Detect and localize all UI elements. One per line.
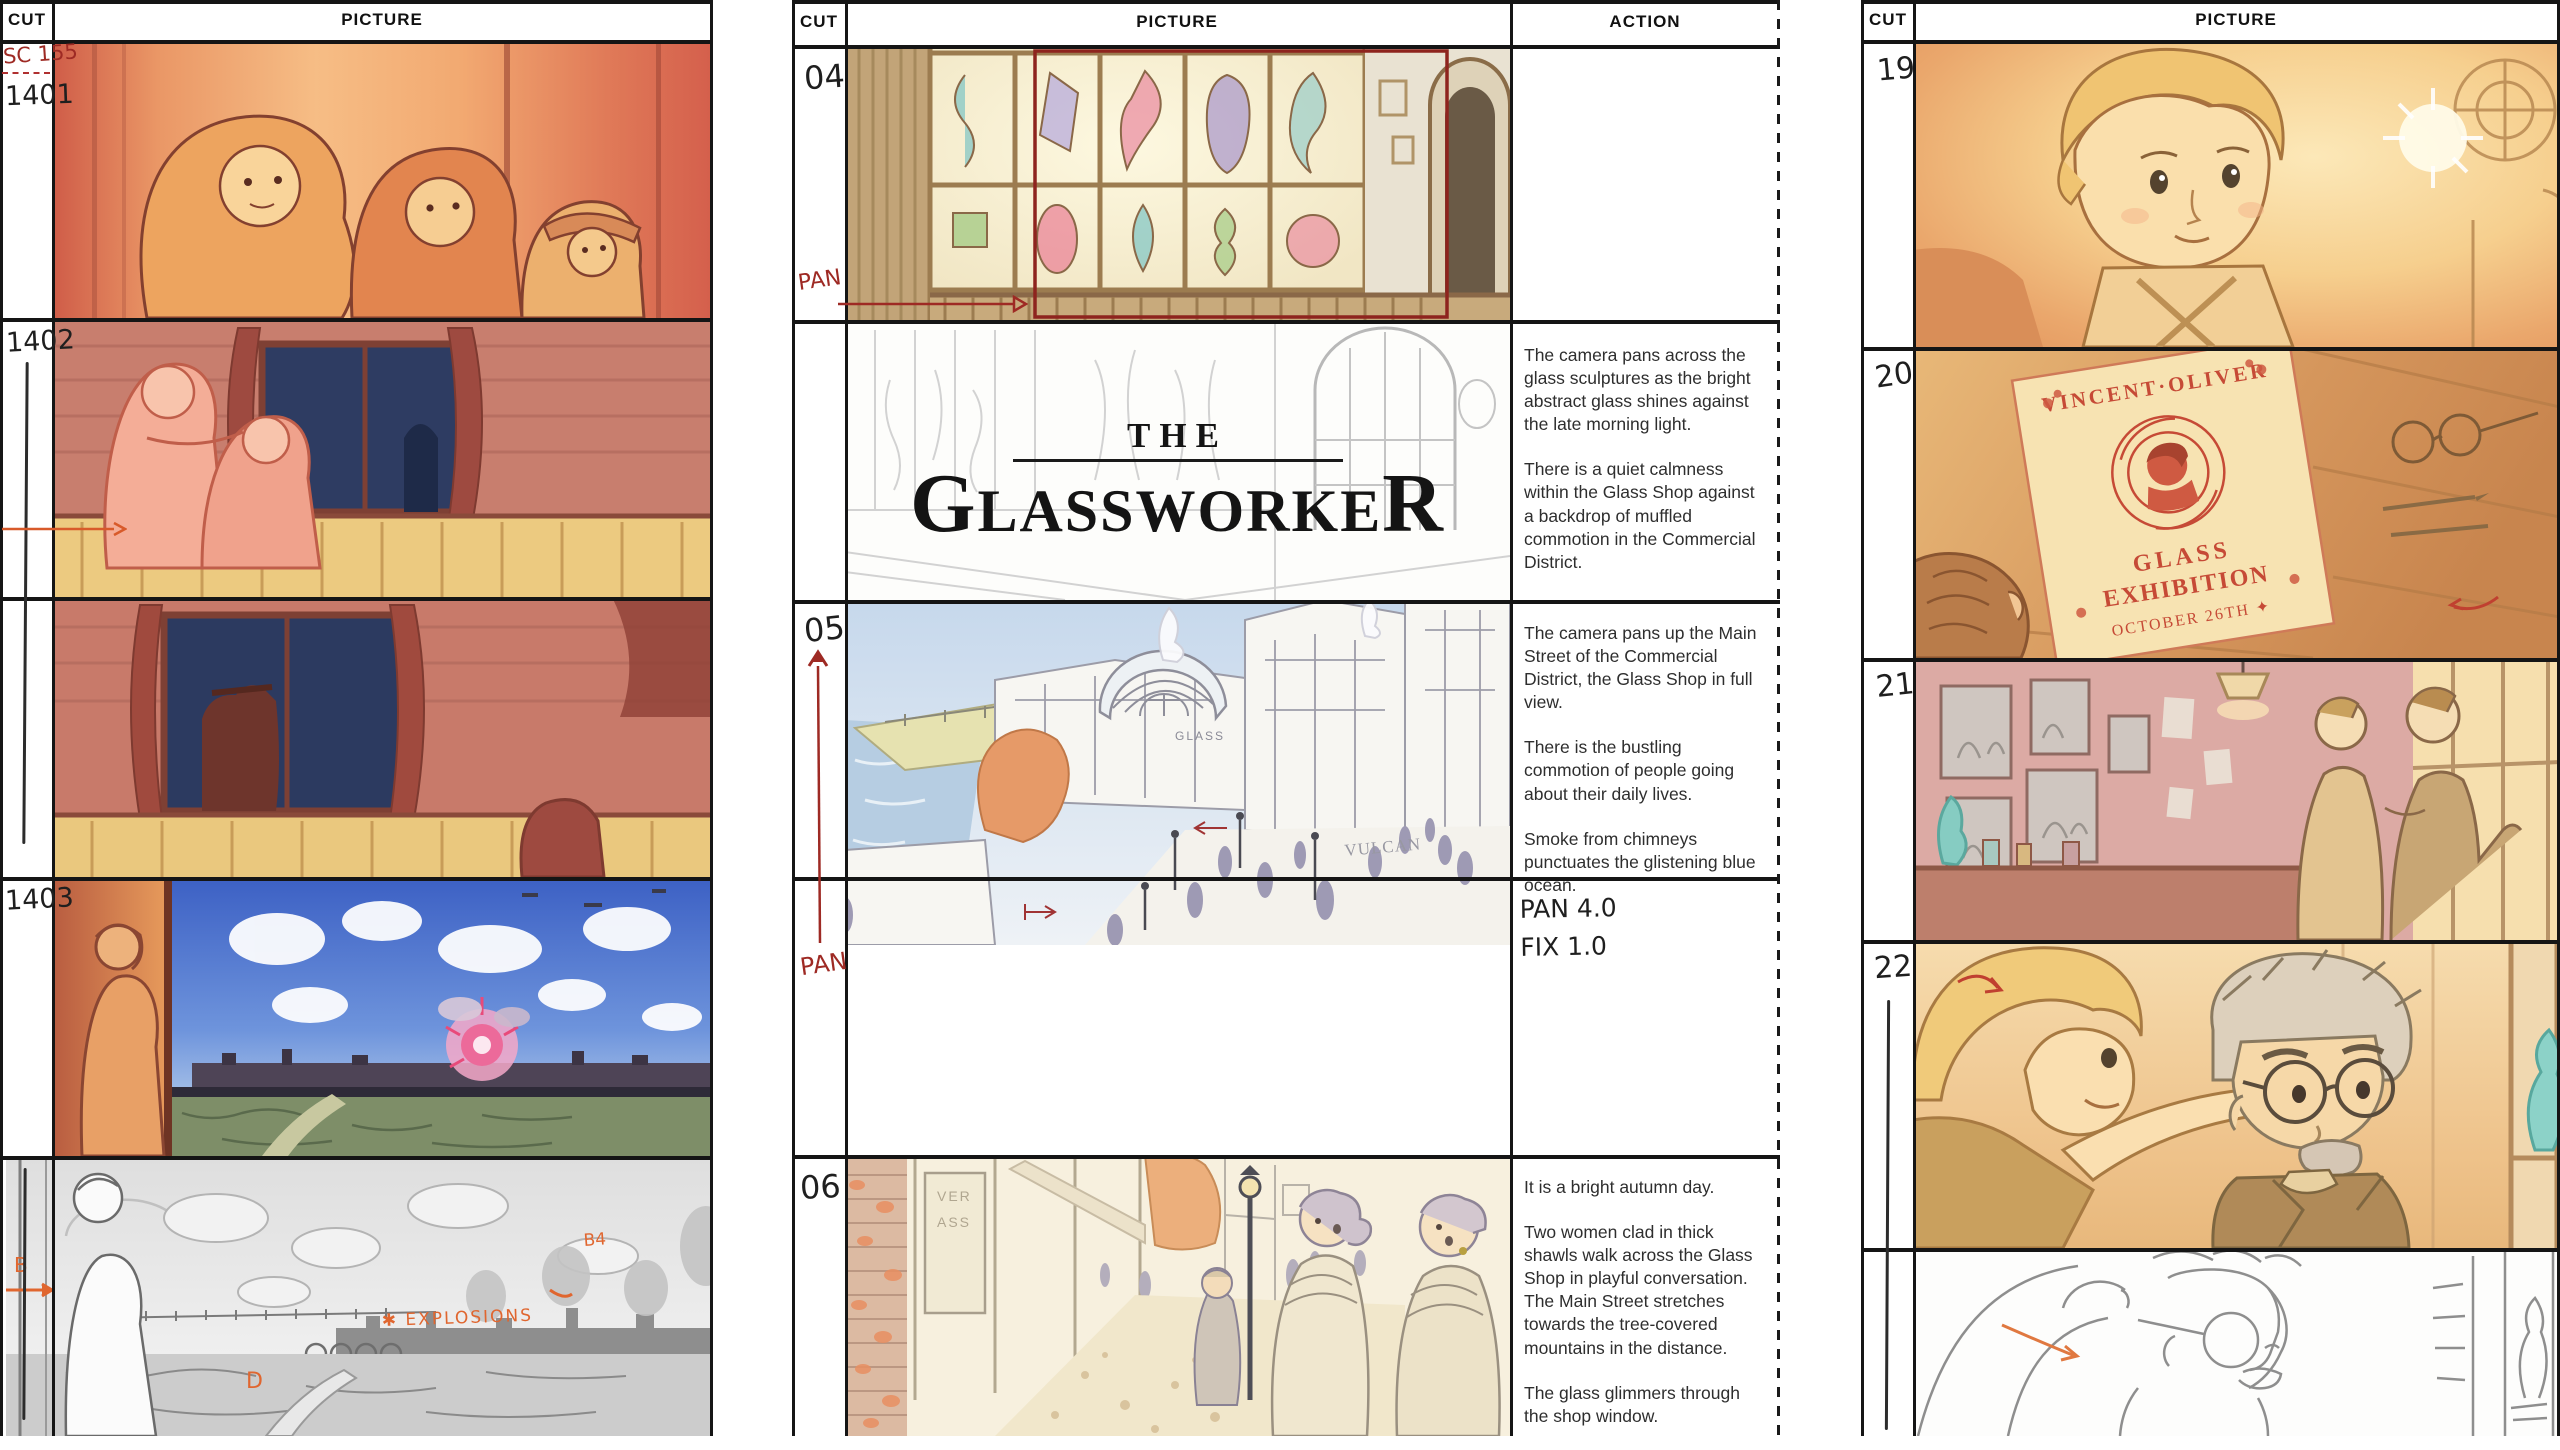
dashed-right-border — [1777, 0, 1780, 1436]
action-pan-fix-hand: PAN 4.0 FIX 1.0 — [1519, 889, 1617, 966]
pan-arrow-04 — [838, 292, 1028, 314]
pan-arrow-05 — [804, 648, 834, 943]
cut-22-continuation-line — [1885, 1000, 1890, 1430]
sketch-vincent-portrait — [1913, 40, 2560, 347]
shop-sign-glass: GLASS — [1175, 729, 1225, 743]
panel-1403-picture — [52, 877, 713, 1156]
panel-title-picture: THE GLASSWORKER — [845, 320, 1510, 600]
action-06: It is a bright autumn day. Two women cla… — [1524, 1176, 1762, 1450]
sketch-boy-and-oldman — [1913, 940, 2560, 1248]
film-title-the: THE — [845, 416, 1510, 456]
panel-05-picture: GLASS VULCAN — [845, 600, 1510, 945]
sketch-children-warm — [52, 40, 713, 318]
action-paragraph: It is a bright autumn day. — [1524, 1176, 1762, 1199]
sketch-shop-interior — [1913, 658, 2560, 940]
panel-22b-picture — [1913, 1248, 2560, 1436]
sketch-night-window-man — [52, 597, 713, 877]
left-header-picture: PICTURE — [341, 10, 423, 30]
annotation-arrow-1402 — [2, 518, 127, 540]
sketch-street-women: VER ASS — [845, 1155, 1510, 1436]
film-title-glassworker: GLASSWORKER — [845, 462, 1510, 546]
annotation-b4: B4 — [583, 1229, 607, 1251]
panel-1401-picture — [52, 40, 713, 318]
annotation-d: D — [246, 1369, 263, 1394]
sketch-night-window-pair — [52, 318, 713, 597]
action-05: The camera pans up the Main Street of th… — [1524, 622, 1762, 919]
shop-sign-fragment-a: VER — [937, 1188, 972, 1204]
cut-label-1403: 1403 — [4, 882, 74, 917]
cut-label-22: 22 — [1873, 949, 1914, 987]
panel-04-picture — [845, 45, 1510, 320]
storyboard-middle: THE GLASSWORKER — [792, 0, 1780, 1436]
action-paragraph: The glass glimmers through the shop wind… — [1524, 1382, 1762, 1428]
cut-label-1402: 1402 — [5, 324, 75, 359]
cut-label-19: 19 — [1876, 50, 1917, 88]
sketch-glass-shelves — [845, 45, 1510, 320]
storyboard-left: B B4 D ✱ EXPLOSIONS SC 155 1401 1402 140… — [0, 0, 713, 1436]
sketch-festival-sky — [52, 877, 713, 1156]
action-title: The camera pans across the glass sculptu… — [1524, 344, 1762, 596]
sketch-main-street-aerial: GLASS VULCAN — [845, 600, 1510, 945]
panel-19-picture — [1913, 40, 2560, 347]
hand-pan-value: PAN 4.0 — [1519, 889, 1617, 928]
cut-label-21: 21 — [1874, 666, 1916, 705]
panel-22-picture — [1913, 940, 2560, 1248]
panel-06-picture: VER ASS — [845, 1155, 1510, 1436]
cut-label-20: 20 — [1873, 356, 1916, 396]
cut-1402-continuation-line — [22, 362, 28, 844]
panel-20-picture: VINCENT·OLIVER GLASS EXHIBITION OCTO — [1913, 347, 2560, 658]
storyboard-right: VINCENT·OLIVER GLASS EXHIBITION OCTO — [1861, 0, 2560, 1436]
right-header-picture: PICTURE — [2195, 10, 2277, 30]
hand-fix-value: FIX 1.0 — [1520, 927, 1618, 966]
shop-sign-fragment-b: ASS — [937, 1214, 971, 1230]
panel-1402-picture — [52, 318, 713, 597]
action-paragraph: Two women clad in thick shawls walk acro… — [1524, 1221, 1762, 1360]
action-paragraph: The camera pans across the glass sculptu… — [1524, 344, 1762, 436]
middle-header-picture: PICTURE — [1136, 12, 1218, 32]
sc155-underline — [2, 72, 50, 74]
pan-label-05: PAN — [798, 947, 849, 981]
cut-label-05: 05 — [802, 608, 846, 650]
panel-21-picture — [1913, 658, 2560, 940]
storyboard-sheet: { "film": {"the": "THE", "g": "G", "mid"… — [0, 0, 2560, 1436]
pan-label-04: PAN — [796, 265, 842, 296]
sketch-festival-grayscale: B B4 D ✱ EXPLOSIONS — [6, 1156, 713, 1436]
middle-header-cut: CUT — [800, 12, 838, 32]
action-paragraph: Smoke from chimneys punctuates the glist… — [1524, 828, 1762, 897]
cut-label-04: 04 — [803, 57, 846, 98]
cut-label-1401: 1401 — [4, 79, 74, 112]
right-header-cut: CUT — [1869, 10, 1907, 30]
left-header-cut: CUT — [8, 10, 46, 30]
sketch-exhibition-poster: VINCENT·OLIVER GLASS EXHIBITION OCTO — [1913, 347, 2560, 658]
film-title-logo: THE GLASSWORKER — [845, 416, 1510, 546]
action-paragraph: There is the bustling commotion of peopl… — [1524, 736, 1762, 805]
action-paragraph: The camera pans up the Main Street of th… — [1524, 622, 1762, 714]
panel-1403b-picture: B B4 D ✱ EXPLOSIONS — [6, 1156, 713, 1436]
action-paragraph: There is a quiet calmness within the Gla… — [1524, 458, 1762, 573]
panel-1402b-picture — [52, 597, 713, 877]
sketch-lineart-boy-oldman — [1913, 1248, 2560, 1436]
middle-header-action: ACTION — [1609, 12, 1680, 32]
cut-label-06: 06 — [799, 1167, 842, 1207]
